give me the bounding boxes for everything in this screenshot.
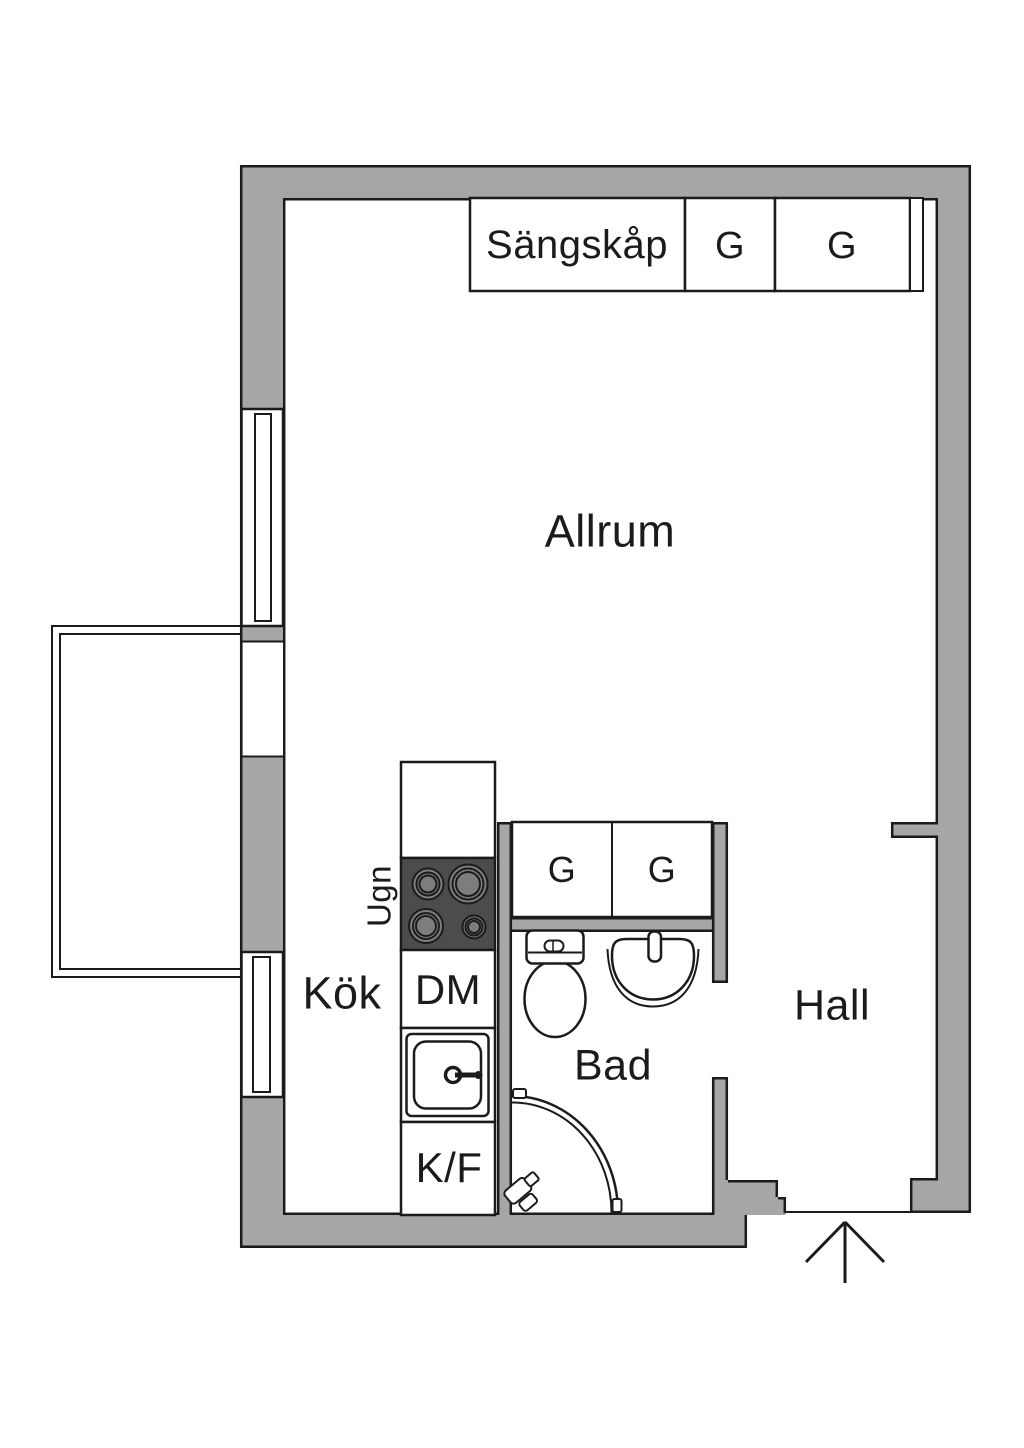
label-dishwasher: DM <box>415 969 481 1011</box>
floor-plan: Sängskåp G G Allrum G G Ugn Kök DM K/F B… <box>0 0 1024 1448</box>
cabinet-filler <box>910 198 923 291</box>
label-hall: Hall <box>794 985 870 1028</box>
wall-left-sill <box>240 627 283 641</box>
window-lower <box>242 952 284 1097</box>
floor-plan-drawing <box>0 0 1024 1448</box>
wall-left-mid <box>240 757 283 952</box>
label-living-room: Allrum <box>545 509 676 554</box>
bathroom-sink-icon <box>608 932 699 1007</box>
label-bathroom: Bad <box>574 1045 652 1088</box>
label-bed-cabinet: Sängskåp <box>486 225 668 265</box>
wall-entry-step-right <box>910 1178 938 1213</box>
kitchen-sink-icon <box>407 1034 489 1116</box>
wall-left-upper <box>240 165 283 408</box>
balcony-outline <box>52 626 243 977</box>
wall-entry-step-left-b <box>728 1197 786 1215</box>
label-wardrobe-mid-2: G <box>648 852 677 888</box>
label-wardrobe-mid-1: G <box>548 852 577 888</box>
toilet-icon <box>525 931 586 1038</box>
label-wardrobe-top-1: G <box>715 227 745 265</box>
label-kitchen: Kök <box>302 971 381 1016</box>
wall-right <box>938 165 971 1213</box>
wall-top <box>240 165 971 198</box>
label-oven: Ugn <box>363 865 396 927</box>
wardrobe-mid-block <box>512 822 712 917</box>
shower-icon <box>503 1089 622 1215</box>
window-upper <box>242 409 284 626</box>
entrance-arrow-icon <box>806 1222 884 1283</box>
label-fridge-freezer: K/F <box>416 1147 483 1189</box>
counter-top-box <box>401 762 495 858</box>
label-wardrobe-top-2: G <box>827 227 857 265</box>
balcony-door-opening <box>240 642 283 757</box>
wall-bottom <box>240 1215 747 1248</box>
